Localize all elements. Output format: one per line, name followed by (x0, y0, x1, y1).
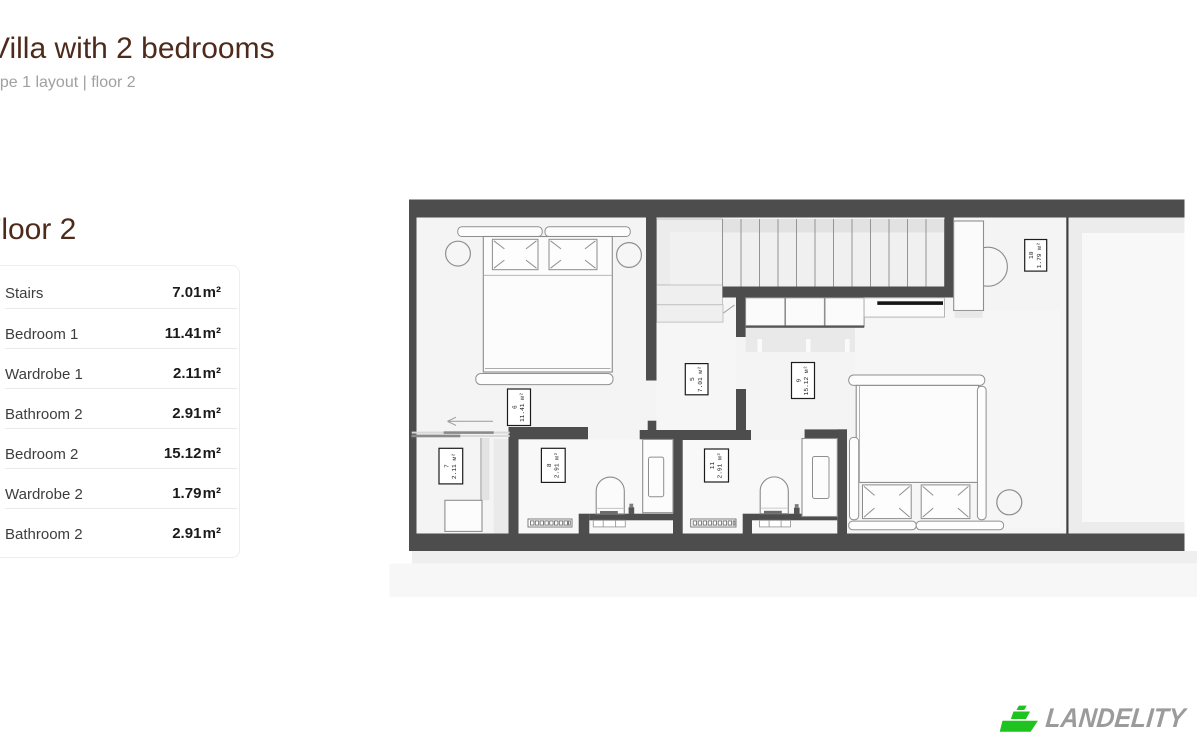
svg-text:2.11 м²: 2.11 м² (451, 453, 458, 479)
svg-text:5: 5 (689, 377, 696, 381)
svg-text:10: 10 (1028, 251, 1035, 259)
svg-text:8: 8 (546, 463, 553, 467)
svg-text:11: 11 (709, 462, 716, 470)
svg-text:11.41 м²: 11.41 м² (519, 392, 526, 422)
svg-text:7: 7 (443, 464, 450, 468)
svg-text:2.91 м²: 2.91 м² (554, 452, 561, 478)
svg-text:6: 6 (512, 405, 519, 409)
svg-text:2.91 м²: 2.91 м² (717, 453, 724, 479)
svg-text:9: 9 (796, 378, 803, 382)
svg-text:15.12 м²: 15.12 м² (803, 366, 810, 396)
svg-text:1.79 м²: 1.79 м² (1036, 242, 1043, 268)
svg-text:7.01 м²: 7.01 м² (697, 366, 704, 392)
